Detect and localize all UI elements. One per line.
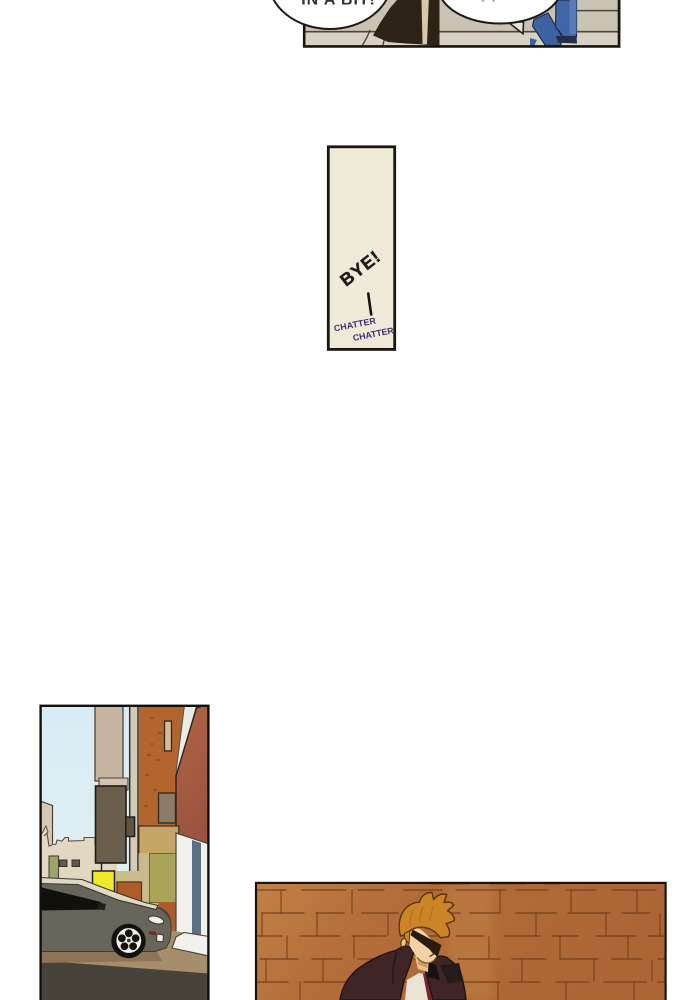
svg-text:IN A BIT!: IN A BIT! (301, 0, 375, 9)
